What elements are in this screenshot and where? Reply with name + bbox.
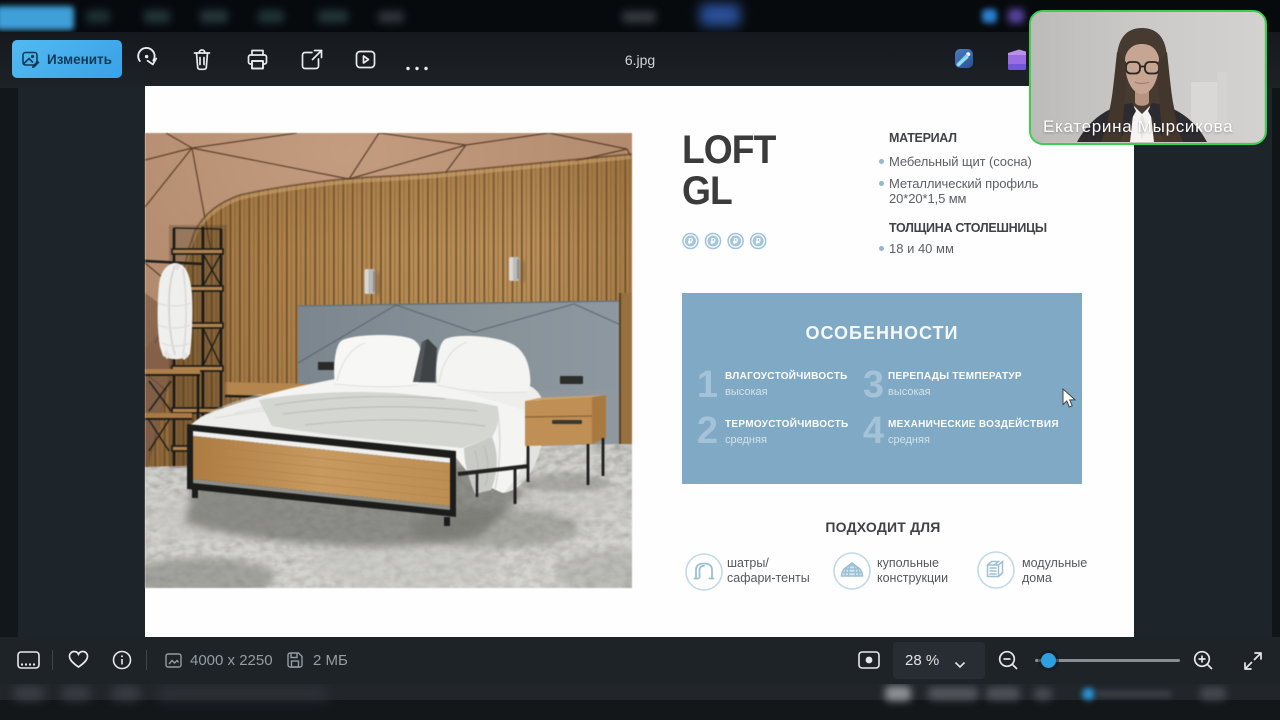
svg-text:₽: ₽: [756, 237, 761, 246]
svg-text:₽: ₽: [710, 237, 715, 246]
svg-text:₽: ₽: [688, 237, 693, 246]
svg-text:₽: ₽: [733, 237, 738, 246]
